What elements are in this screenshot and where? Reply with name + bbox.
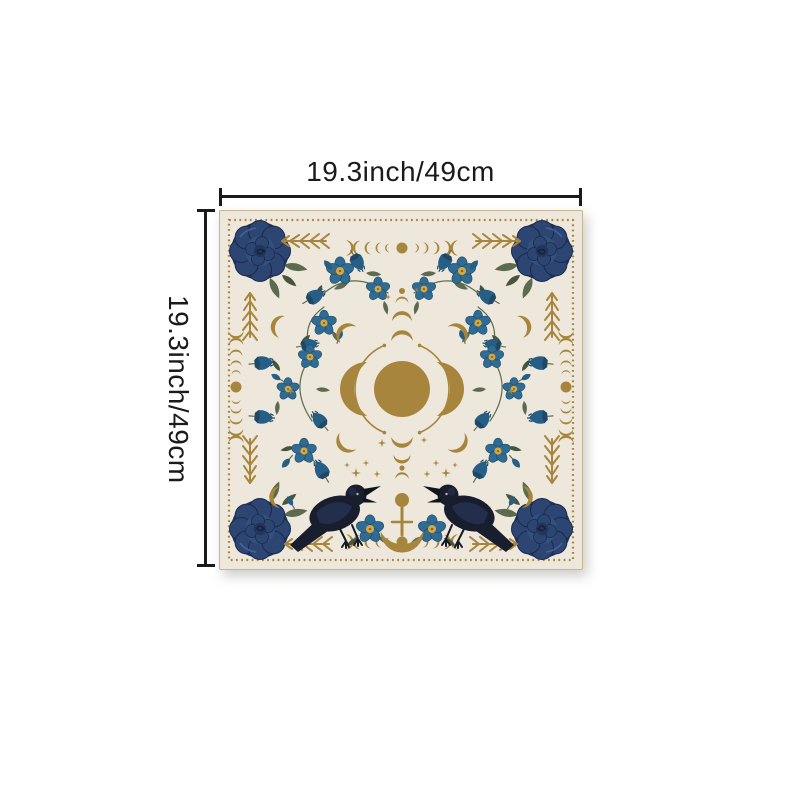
height-dimension-line [204,209,207,567]
width-dimension-label: 19.3inch/49cm [219,156,582,188]
height-dimension-tick-bottom [197,564,215,567]
height-dimension-label: 19.3inch/49cm [158,210,198,568]
width-dimension-line [219,195,582,198]
product-image: 19.3inch/49cm 19.3inch/49cm [0,0,800,800]
cloth-artwork [220,211,582,569]
width-dimension-tick-right [579,188,582,206]
triple-moon-symbol [340,287,464,470]
width-dimension-tick-left [219,188,222,206]
altar-cloth [219,210,583,570]
height-dimension-tick-top [197,209,215,212]
